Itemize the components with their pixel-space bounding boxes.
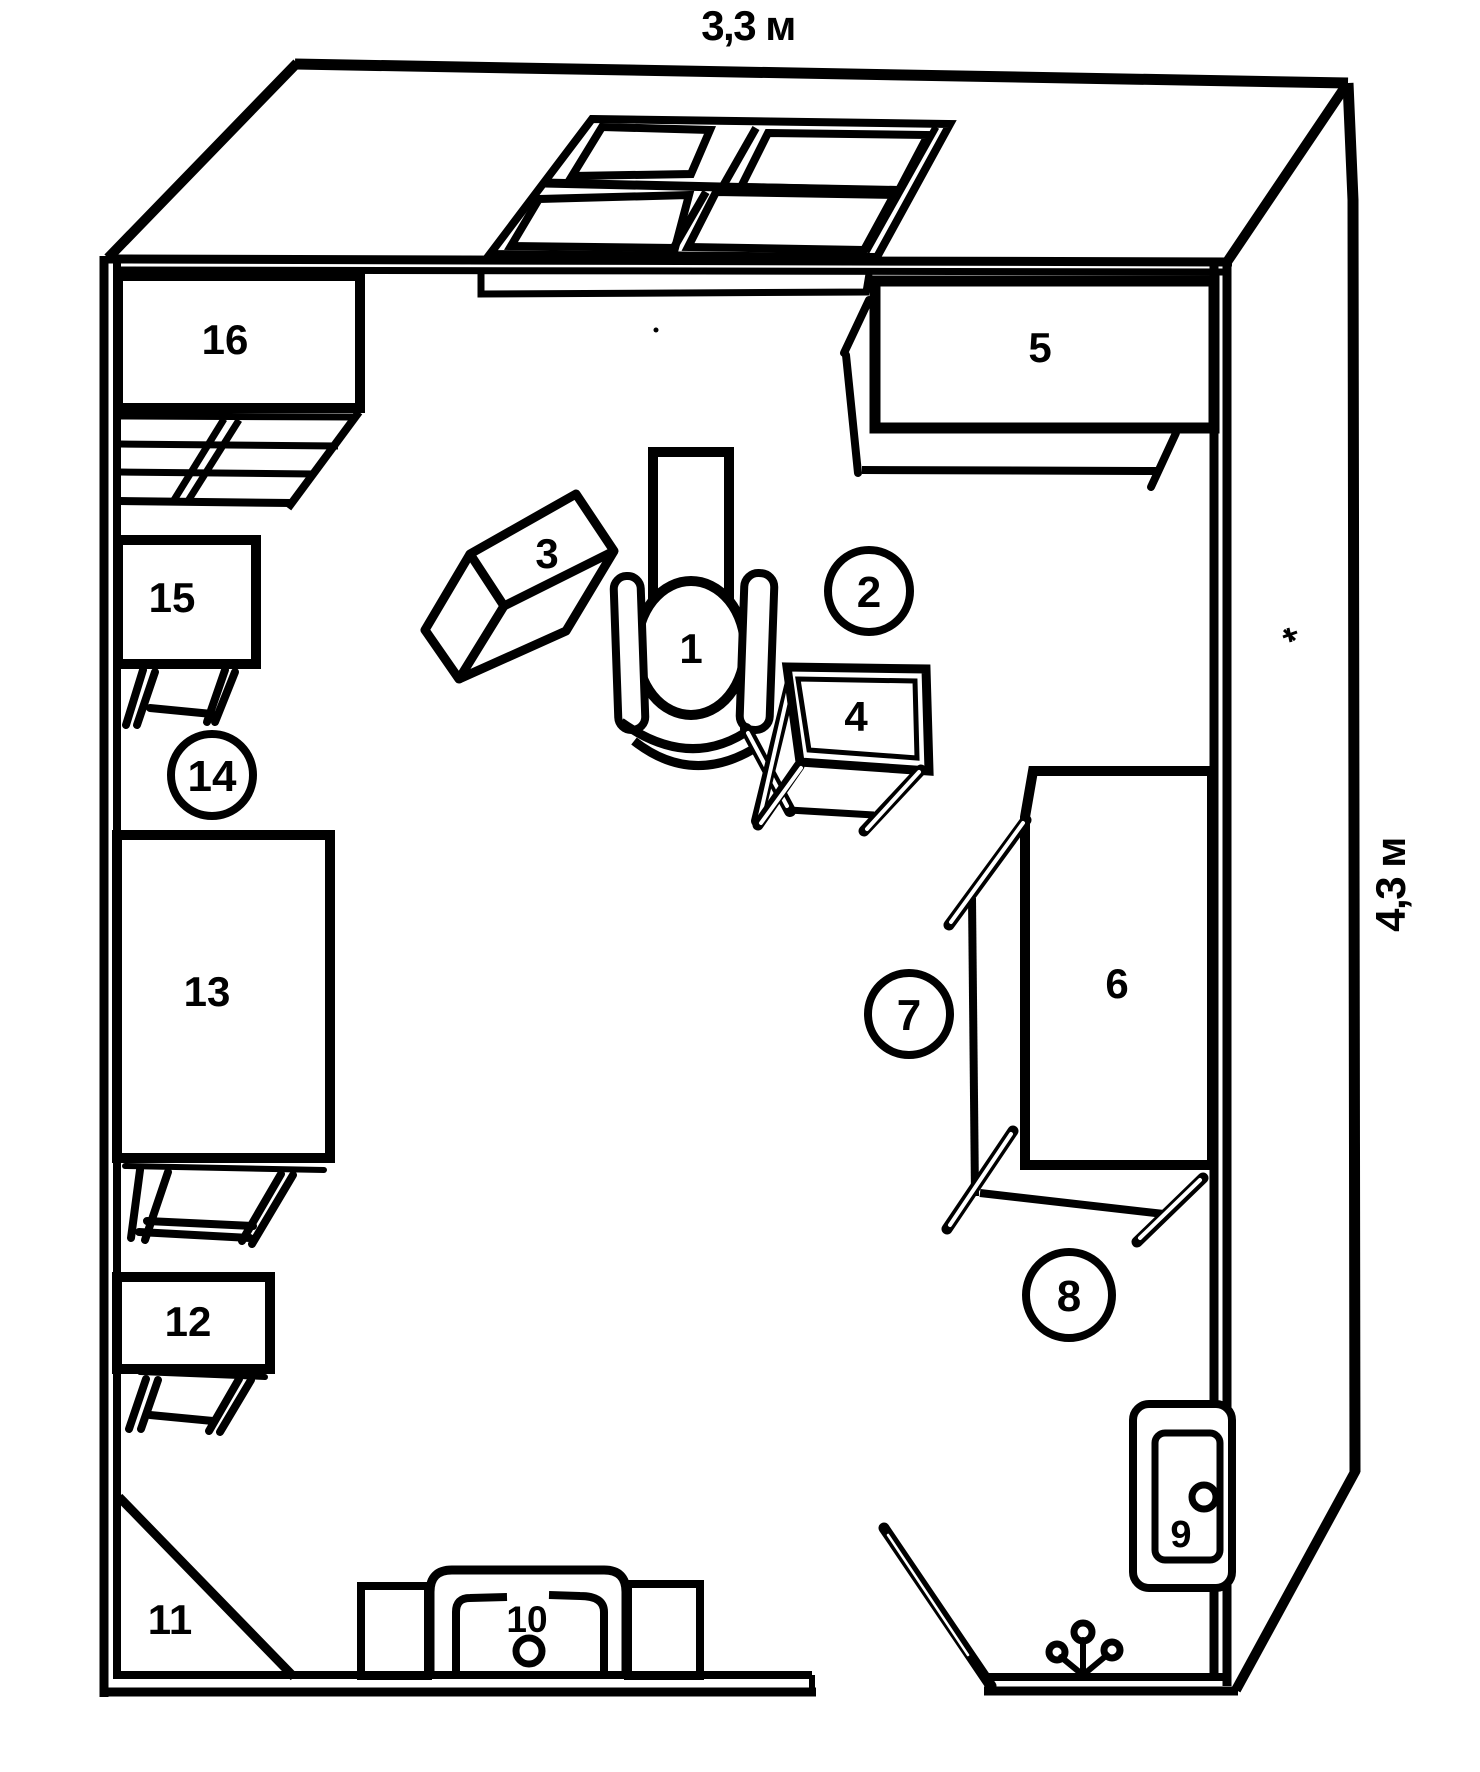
svg-text:12: 12: [165, 1298, 212, 1345]
svg-text:15: 15: [149, 574, 196, 621]
svg-text:8: 8: [1057, 1272, 1081, 1321]
svg-text:2: 2: [857, 568, 881, 617]
svg-text:4,3 м: 4,3 м: [1367, 838, 1414, 932]
svg-text:3: 3: [535, 530, 558, 577]
svg-text:4: 4: [844, 693, 868, 740]
svg-text:6: 6: [1105, 960, 1128, 1007]
svg-text:1: 1: [679, 625, 702, 672]
svg-text:9: 9: [1170, 1514, 1191, 1556]
svg-text:13: 13: [184, 968, 231, 1015]
svg-text:7: 7: [897, 991, 921, 1040]
svg-text:16: 16: [202, 316, 249, 363]
svg-text:11: 11: [148, 1596, 192, 1643]
svg-text:5: 5: [1028, 324, 1051, 371]
svg-text:10: 10: [506, 1599, 547, 1640]
svg-text:14: 14: [188, 752, 237, 801]
svg-text:3,3 м: 3,3 м: [701, 2, 795, 49]
